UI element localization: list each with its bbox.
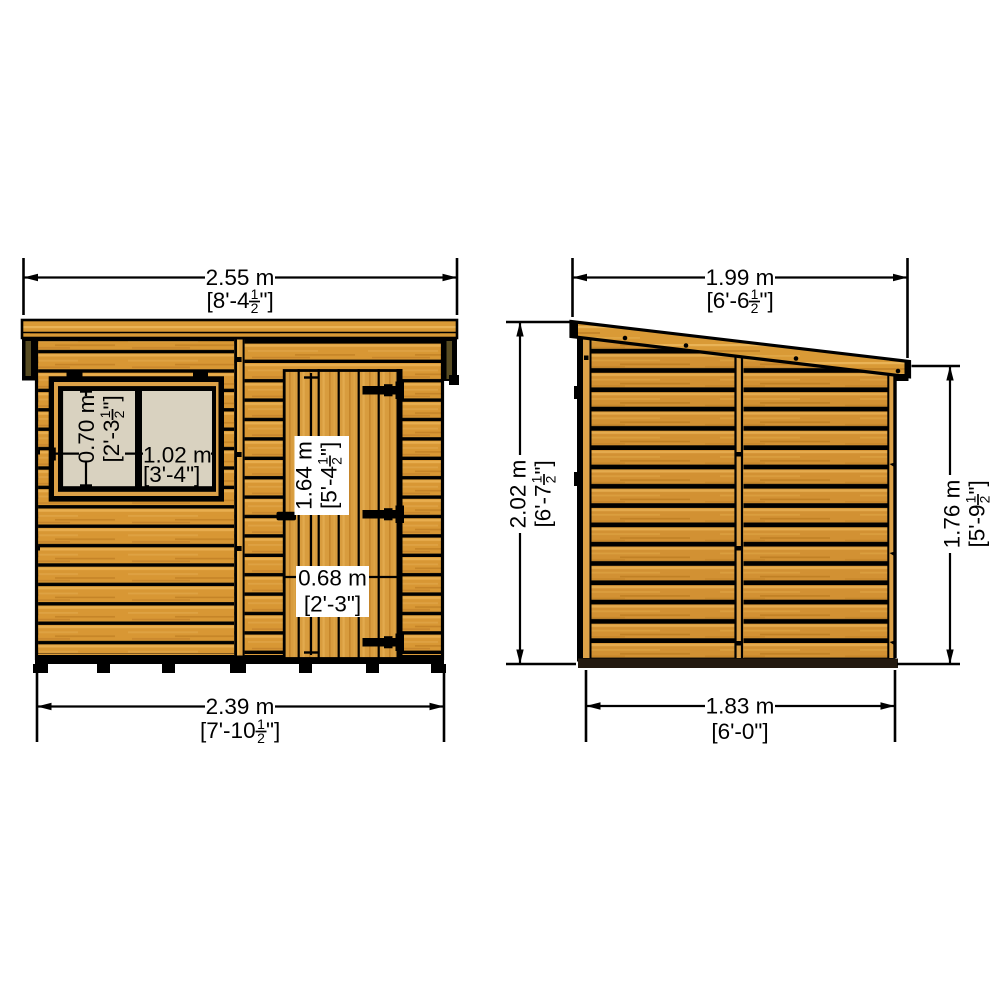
svg-text:[6'-0"]: [6'-0"] — [711, 719, 768, 744]
svg-text:[5'-4: [5'-4 — [317, 466, 342, 509]
svg-text:2.02 m: 2.02 m — [506, 460, 531, 529]
svg-text:[3'-4"]: [3'-4"] — [143, 462, 200, 487]
svg-text:[5'-9: [5'-9 — [965, 504, 990, 547]
svg-text:[6'-7: [6'-7 — [531, 484, 556, 527]
svg-text:"]: "] — [317, 442, 342, 456]
svg-text:"]: "] — [99, 395, 124, 409]
svg-text:2: 2 — [329, 457, 345, 465]
svg-text:1.83 m: 1.83 m — [706, 694, 775, 719]
svg-text:"]: "] — [965, 480, 990, 494]
svg-text:2: 2 — [977, 495, 993, 503]
svg-text:1.64 m: 1.64 m — [292, 441, 317, 510]
svg-text:[8'-4: [8'-4 — [207, 288, 250, 313]
svg-text:2: 2 — [543, 475, 559, 483]
svg-text:"]: "] — [260, 288, 274, 313]
svg-text:2: 2 — [257, 730, 265, 746]
svg-text:[2'-3: [2'-3 — [99, 419, 124, 462]
svg-text:0.68 m: 0.68 m — [298, 566, 367, 591]
svg-text:2.55 m: 2.55 m — [206, 265, 275, 290]
svg-text:1.99 m: 1.99 m — [706, 265, 775, 290]
svg-text:"]: "] — [760, 288, 774, 313]
svg-text:"]: "] — [531, 460, 556, 474]
svg-text:2: 2 — [251, 300, 259, 316]
svg-text:[2'-3"]: [2'-3"] — [304, 592, 361, 617]
svg-text:2: 2 — [111, 410, 127, 418]
svg-text:2: 2 — [751, 300, 759, 316]
svg-text:1.76 m: 1.76 m — [940, 480, 965, 549]
svg-text:"]: "] — [266, 718, 280, 743]
svg-text:[6'-6: [6'-6 — [707, 288, 750, 313]
svg-text:[7'-10: [7'-10 — [200, 718, 256, 743]
svg-text:0.70 m: 0.70 m — [74, 395, 99, 464]
